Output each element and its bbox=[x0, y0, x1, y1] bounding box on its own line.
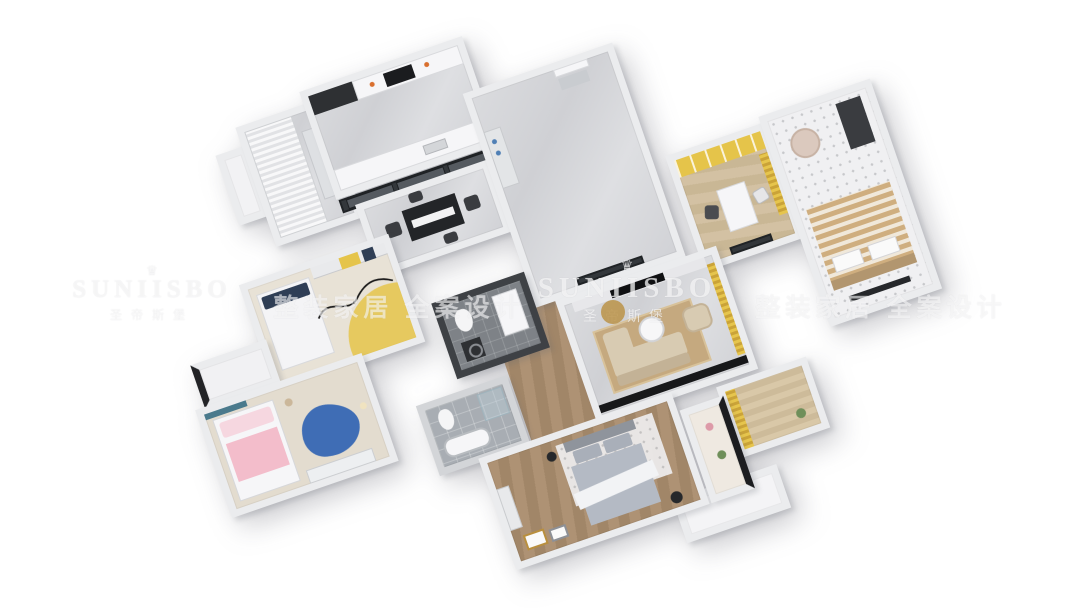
toy bbox=[359, 401, 368, 410]
kids-bed bbox=[212, 399, 301, 501]
dining-chair bbox=[443, 231, 459, 245]
study-bookshelf bbox=[674, 131, 766, 178]
plant bbox=[795, 407, 808, 420]
wardrobe-yellow-door bbox=[338, 252, 361, 270]
study-chair bbox=[705, 205, 719, 219]
study-desk bbox=[716, 181, 759, 232]
kids-blanket-pink bbox=[226, 427, 290, 482]
study-glass-door bbox=[729, 233, 773, 255]
shower-glass bbox=[476, 386, 510, 421]
study-chair bbox=[751, 186, 770, 205]
table-runner bbox=[411, 206, 455, 228]
kids-blue-rug bbox=[300, 402, 362, 459]
bath-vanity bbox=[491, 288, 529, 336]
floor-lamp bbox=[669, 490, 684, 505]
kitchen-upper-cabinets bbox=[308, 81, 358, 115]
plant bbox=[716, 449, 727, 460]
floorplan-screenshot: ♛ SUNIISBO 圣帝斯堡 整装家居 全案设计 ♛ SUNIISBO 圣帝斯… bbox=[0, 0, 1080, 608]
floor-lamp bbox=[545, 450, 558, 463]
toilet bbox=[452, 307, 476, 334]
round-chair bbox=[786, 124, 824, 162]
balcony-prop bbox=[704, 422, 714, 432]
bedroom2-cabinet bbox=[835, 96, 875, 150]
picture-frame bbox=[548, 524, 569, 542]
pillow-navy bbox=[261, 282, 311, 310]
dining-chair bbox=[463, 194, 482, 212]
apartment-3d-floorplan bbox=[61, 0, 1019, 608]
master-dresser bbox=[496, 485, 523, 531]
picture-frame bbox=[523, 528, 549, 550]
washer-door bbox=[467, 342, 485, 360]
washer bbox=[461, 337, 486, 362]
toilet bbox=[436, 407, 457, 432]
dining-chair bbox=[407, 190, 423, 204]
living-curtain bbox=[707, 262, 746, 355]
bathtub bbox=[441, 425, 493, 460]
toy bbox=[284, 397, 294, 407]
